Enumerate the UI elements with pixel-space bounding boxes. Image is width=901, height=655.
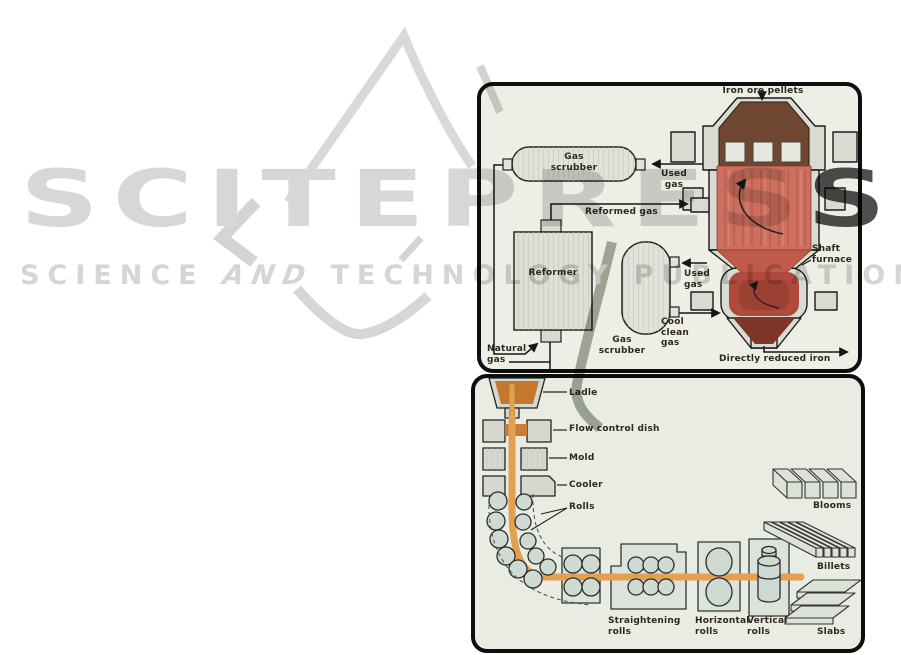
label-reformer: Reformer xyxy=(514,268,592,279)
logo-peak-stroke xyxy=(288,36,472,202)
label-mold: Mold xyxy=(569,453,594,464)
logo-swoosh xyxy=(297,289,428,334)
continuous-casting-diagram xyxy=(475,378,861,649)
furnace-ports xyxy=(725,142,801,162)
casting-head xyxy=(483,378,555,496)
label-vertical-rolls: Vertical rolls xyxy=(747,616,795,637)
label-gas-scrubber-bottom: Gas scrubber xyxy=(591,335,653,356)
figure-continuous-casting: Ladle Flow control dish Mold Cooler Roll… xyxy=(471,374,865,653)
label-natural-gas: Natural gas xyxy=(487,344,537,365)
blooms-shape xyxy=(773,469,856,498)
figure-direct-reduction: Iron ore pellets Gas scrubber Used gas R… xyxy=(477,82,862,373)
label-cooler: Cooler xyxy=(569,480,603,491)
label-directly-reduced-iron: Directly reduced iron xyxy=(719,354,831,365)
label-used-gas-lower: Used gas xyxy=(684,269,714,290)
label-rolls: Rolls xyxy=(569,502,595,513)
scanned-paper-page: { "watermark": { "brand_main": "SCITEPRE… xyxy=(0,0,901,655)
label-slabs: Slabs xyxy=(817,627,845,638)
label-flow-control-dish: Flow control dish xyxy=(569,424,660,435)
tagline-and: AND xyxy=(220,262,315,289)
rolls-leaders xyxy=(531,508,567,530)
label-gas-scrubber-top: Gas scrubber xyxy=(512,152,636,173)
reformer-vessel xyxy=(514,220,592,342)
label-horizontal-rolls: Horizontal rolls xyxy=(695,616,749,637)
tagline-science: SCIENCE xyxy=(20,262,205,289)
shaft-furnace-interior xyxy=(717,102,811,344)
logo-accent-slash xyxy=(401,238,421,260)
label-blooms: Blooms xyxy=(813,501,851,512)
label-iron-ore-pellets: Iron ore pellets xyxy=(707,86,819,97)
ladle-melt xyxy=(495,381,539,404)
label-straightening-rolls: Straightening rolls xyxy=(608,616,684,637)
tundish xyxy=(483,420,551,442)
label-shaft-furnace: Shaft furnace xyxy=(812,244,858,265)
label-billets: Billets xyxy=(817,562,850,573)
slabs-shape xyxy=(785,580,861,624)
label-used-gas-upper: Used gas xyxy=(657,169,691,190)
label-ladle: Ladle xyxy=(569,388,597,399)
label-reformed-gas: Reformed gas xyxy=(585,207,677,218)
logo-chevron xyxy=(222,202,256,262)
label-cool-clean-gas: Cool clean gas xyxy=(661,317,705,349)
